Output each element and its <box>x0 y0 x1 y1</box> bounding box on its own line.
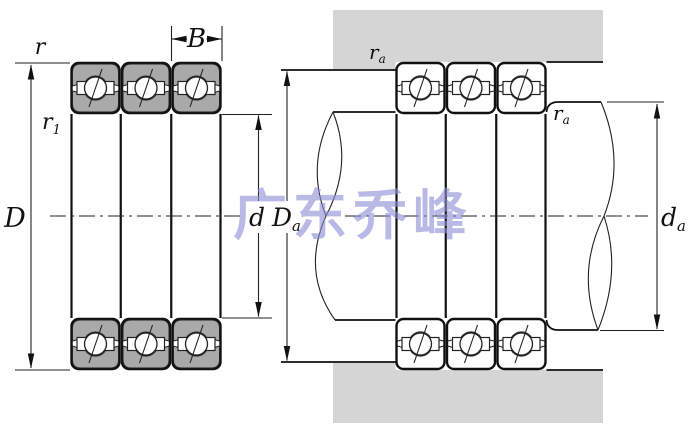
bearing-cell <box>72 63 120 113</box>
dim-label-da: da <box>661 203 686 235</box>
dim-label-r1: r1 <box>42 110 61 138</box>
bearing-cell <box>122 319 170 369</box>
bearing-cell <box>72 319 120 369</box>
diagram-canvas: Da da ra ra <box>0 0 698 431</box>
dim-label-ra-shaft: ra <box>553 101 570 127</box>
bearing-cell <box>122 63 170 113</box>
bearing-cell <box>173 319 221 369</box>
dim-label-r: r <box>35 35 47 60</box>
housing-block-bottom <box>333 370 603 423</box>
shaft-break-right <box>601 102 614 216</box>
bearing-cell <box>397 63 445 113</box>
bearing-cell <box>397 319 445 369</box>
bearing-cell <box>173 63 221 113</box>
bearing-cell <box>447 63 495 113</box>
bearing-dimension-diagram: Da da ra ra <box>0 0 698 431</box>
bearing-cell <box>498 319 546 369</box>
left-cross-section-view: D B d r r1 <box>3 24 272 370</box>
housing-shoulder-top <box>333 62 396 70</box>
dim-label-D: D <box>3 203 26 234</box>
watermark-text: 广东乔峰 <box>233 184 473 247</box>
housing-shoulder-bottom <box>333 362 396 370</box>
dim-label-B: B <box>186 24 206 54</box>
dimension-B: B <box>172 24 223 61</box>
bearing-cell <box>498 63 546 113</box>
bearing-cell <box>447 319 495 369</box>
